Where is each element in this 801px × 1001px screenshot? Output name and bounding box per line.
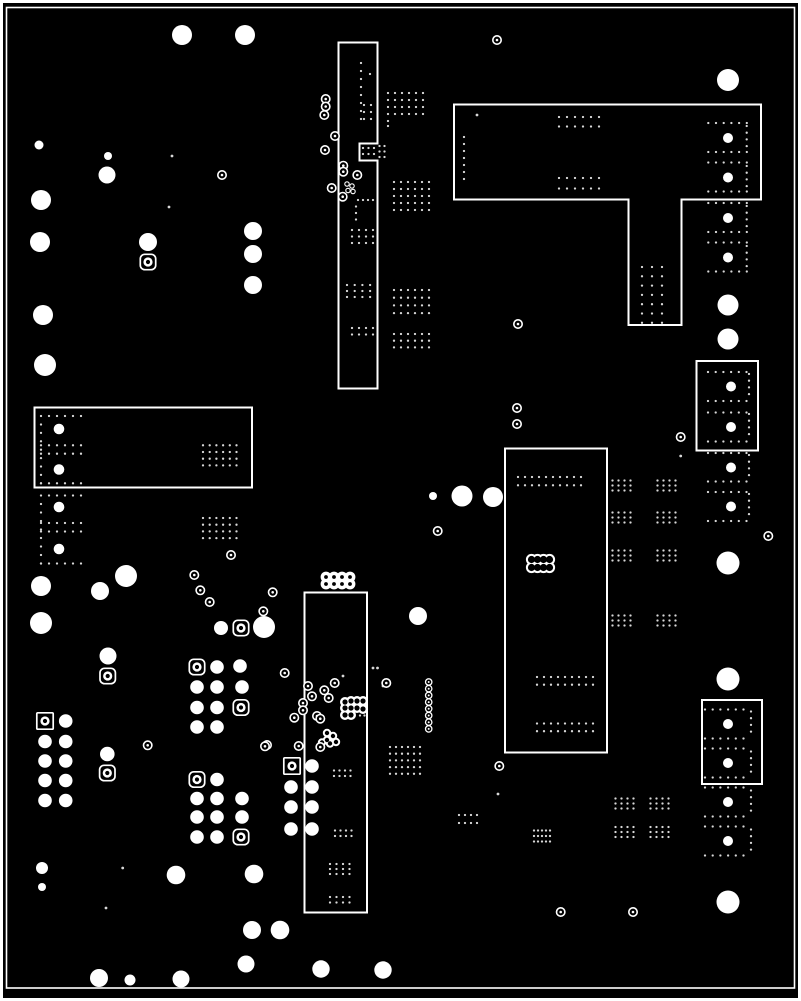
stitch-dot	[422, 113, 424, 115]
filled-via	[244, 276, 262, 294]
stitch-dot	[56, 522, 58, 524]
pad-block-circle	[38, 735, 52, 749]
stitch-dot	[362, 153, 364, 155]
stitch-dot	[215, 464, 217, 466]
stitch-dot	[674, 511, 676, 513]
stitch-dot	[620, 826, 622, 828]
stitch-dot	[617, 484, 619, 486]
stitch-dot	[345, 829, 347, 831]
stitch-dot	[363, 714, 365, 716]
stitch-dot	[557, 684, 559, 686]
stitch-dot	[712, 815, 714, 817]
stitch-dot	[704, 815, 706, 817]
stitch-dot	[476, 814, 478, 816]
pcb-copper-layer-view	[0, 0, 801, 1001]
stitch-dot	[715, 202, 717, 204]
ring-via-center	[262, 610, 265, 613]
stitch-dot	[661, 322, 663, 324]
stitch-dot	[394, 99, 396, 101]
stitch-dot	[401, 773, 403, 775]
stitch-dot	[674, 489, 676, 491]
stitch-dot	[358, 242, 360, 244]
ring-chain-center	[428, 708, 430, 710]
ring-cluster-2x4-hole	[348, 575, 352, 579]
stitch-dot	[649, 807, 651, 809]
stitch-dot	[369, 290, 371, 292]
stitch-dot	[719, 776, 721, 778]
stitch-dot	[750, 803, 752, 805]
stitch-dot	[372, 333, 374, 335]
stitch-dot	[40, 457, 42, 459]
stitch-dot	[393, 297, 395, 299]
stitch-dot	[393, 333, 395, 335]
ring-via-center	[230, 554, 233, 557]
filled-via	[244, 222, 262, 240]
stitch-dot	[590, 177, 592, 179]
ring-via-center	[199, 589, 202, 592]
pad-block-circle	[59, 714, 73, 728]
stitch-dot	[661, 266, 663, 268]
stitch-dot	[674, 479, 676, 481]
ring-chain-center	[428, 728, 430, 730]
stitch-dot	[209, 517, 211, 519]
stitch-dot	[651, 294, 653, 296]
stitch-dot	[620, 802, 622, 804]
stitch-dot	[209, 458, 211, 460]
stitch-dot	[626, 831, 628, 833]
stitch-dot	[533, 835, 535, 837]
ring-via-center	[356, 174, 359, 177]
stitch-dot	[629, 521, 631, 523]
stitch-dot	[358, 235, 360, 237]
stitch-dot	[357, 199, 359, 201]
stitch-dot	[712, 747, 714, 749]
stitch-dot	[746, 190, 748, 192]
stitch-dot	[419, 773, 421, 775]
stitch-dot	[387, 120, 389, 122]
stitch-dot	[215, 530, 217, 532]
stitch-dot	[378, 145, 380, 147]
stitch-dot	[40, 530, 42, 532]
stitch-dot	[730, 411, 732, 413]
stitch-dot	[335, 901, 337, 903]
stitch-dot	[738, 400, 740, 402]
stitch-dot	[395, 753, 397, 755]
stitch-dot	[80, 522, 82, 524]
stitch-dot	[750, 789, 752, 791]
stitch-dot	[80, 453, 82, 455]
stitch-dot	[464, 822, 466, 824]
ring-cluster-2x4-hole	[332, 575, 336, 579]
stitch-dot	[590, 125, 592, 127]
stitch-dot	[629, 484, 631, 486]
filled-via	[172, 25, 192, 45]
stitch-dot	[414, 297, 416, 299]
stitch-dot	[748, 433, 750, 435]
stitch-dot	[629, 479, 631, 481]
filled-via	[723, 758, 733, 768]
stitch-dot	[746, 212, 748, 214]
stitch-dot	[611, 516, 613, 518]
stitch-dot	[531, 476, 533, 478]
stitch-dot	[674, 554, 676, 556]
stitch-dot	[722, 440, 724, 442]
stitch-dot	[72, 415, 74, 417]
filled-via	[723, 173, 733, 183]
stitch-dot	[564, 730, 566, 732]
stitch-dot	[407, 304, 409, 306]
stitch-dot	[574, 177, 576, 179]
stitch-dot	[235, 444, 237, 446]
stitch-dot	[723, 202, 725, 204]
stitch-dot	[611, 559, 613, 561]
stitch-dot	[667, 797, 669, 799]
stitch-dot	[742, 737, 744, 739]
stitch-dot	[626, 807, 628, 809]
ring-via-center	[324, 149, 327, 152]
stitch-dot	[56, 453, 58, 455]
scallop-edge-bottom-center-hole	[360, 698, 365, 703]
stitch-dot	[750, 796, 752, 798]
stitch-dot	[407, 773, 409, 775]
stitch-dot	[614, 826, 616, 828]
pad-block-circle	[305, 800, 319, 814]
stitch-dot	[750, 750, 752, 752]
stitch-dot	[393, 346, 395, 348]
stitch-dot	[414, 304, 416, 306]
stitch-dot	[428, 304, 430, 306]
filled-via	[54, 502, 65, 513]
stitch-dot	[202, 517, 204, 519]
pad-block-circle	[38, 794, 52, 808]
stitch-dot	[363, 111, 365, 113]
stitch-dot	[428, 340, 430, 342]
stitch-dot	[394, 92, 396, 94]
stitch-dot	[738, 520, 740, 522]
ring-via-center	[496, 39, 499, 42]
scallop-edge-bottom-center-hole	[354, 705, 359, 710]
stitch-dot	[407, 297, 409, 299]
stitch-dot	[40, 528, 42, 530]
stitch-dot	[536, 730, 538, 732]
stitch-dot	[674, 516, 676, 518]
stitch-dot	[348, 873, 350, 875]
stitch-dot	[719, 825, 721, 827]
filled-via	[139, 233, 157, 251]
stitch-dot	[719, 815, 721, 817]
stitch-dot	[632, 797, 634, 799]
stitch-dot	[655, 826, 657, 828]
stitch-dot	[329, 896, 331, 898]
pad-block-circle	[59, 754, 73, 768]
stitch-dot	[649, 826, 651, 828]
stitch-dot	[407, 753, 409, 755]
stitch-dot	[580, 476, 582, 478]
stitch-dot	[393, 340, 395, 342]
stitch-dot	[727, 737, 729, 739]
stitch-dot	[707, 270, 709, 272]
stitch-dot	[333, 769, 335, 771]
ring-via-center	[498, 765, 501, 768]
stitch-dot	[667, 831, 669, 833]
stitch-dot	[222, 444, 224, 446]
stitch-dot	[235, 537, 237, 539]
stitch-dot	[668, 521, 670, 523]
stitch-dot	[538, 484, 540, 486]
stitch-dot	[564, 676, 566, 678]
stitch-dot	[365, 235, 367, 237]
stitch-dot	[541, 829, 543, 831]
stitch-dot	[559, 476, 561, 478]
stitch-dot	[614, 807, 616, 809]
stitch-dot	[617, 516, 619, 518]
stitch-dot	[649, 797, 651, 799]
stitch-dot	[358, 229, 360, 231]
ring-via-center	[517, 323, 520, 326]
stitch-dot	[748, 461, 750, 463]
stitch-dot	[626, 802, 628, 804]
stitch-dot	[662, 489, 664, 491]
stitch-dot	[748, 420, 750, 422]
scallop-edge-bottom-center-hole	[342, 705, 347, 710]
small-ring-via	[350, 184, 354, 188]
stitch-dot	[566, 187, 568, 189]
stitch-dot	[712, 776, 714, 778]
scallop-edge-bottom-center-hole	[354, 698, 359, 703]
stitch-dot	[649, 831, 651, 833]
filled-via	[238, 956, 255, 973]
stitch-dot	[629, 489, 631, 491]
stitch-dot	[674, 559, 676, 561]
filled-via	[173, 971, 190, 988]
stitch-dot	[585, 730, 587, 732]
stitch-dot	[40, 537, 42, 539]
stitch-dot	[715, 400, 717, 402]
pad-block-circle	[210, 810, 224, 824]
stitch-dot	[401, 753, 403, 755]
ring-cluster-2x4-hole	[332, 582, 336, 586]
pcb-layer-viewport	[0, 0, 801, 1001]
stitch-dot	[370, 104, 372, 106]
stitch-dot	[715, 151, 717, 153]
stitch-dot	[421, 195, 423, 197]
stitch-dot	[750, 809, 752, 811]
stitch-dot	[229, 537, 231, 539]
stitch-dot	[662, 549, 664, 551]
stitch-dot	[401, 92, 403, 94]
stitch-dot	[735, 854, 737, 856]
stitch-dot	[750, 842, 752, 844]
stitch-dot	[543, 676, 545, 678]
stitch-dot	[202, 537, 204, 539]
stitch-dot	[598, 116, 600, 118]
stitch-dot	[750, 848, 752, 850]
stitch-dot	[407, 312, 409, 314]
stitch-dot	[372, 242, 374, 244]
stitch-dot	[674, 549, 676, 551]
stitch-dot	[378, 150, 380, 152]
stitch-dot	[656, 549, 658, 551]
filled-via	[243, 921, 261, 939]
stitch-dot	[611, 489, 613, 491]
stitch-dot	[651, 266, 653, 268]
stitch-dot	[369, 296, 371, 298]
ring-via-center	[342, 164, 345, 167]
stitch-dot	[40, 453, 42, 455]
stitch-dot	[735, 747, 737, 749]
stitch-dot	[64, 494, 66, 496]
single-dot	[372, 667, 375, 670]
stitch-dot	[611, 521, 613, 523]
stitch-dot	[632, 836, 634, 838]
stitch-dot	[641, 275, 643, 277]
stitch-dot	[545, 829, 547, 831]
stitch-dot	[651, 312, 653, 314]
stitch-dot	[543, 722, 545, 724]
stitch-dot	[667, 802, 669, 804]
stitch-dot	[748, 474, 750, 476]
stitch-dot	[421, 333, 423, 335]
stitch-dot	[401, 106, 403, 108]
stitch-dot	[401, 113, 403, 115]
stitch-dot	[463, 171, 465, 173]
stitch-dot	[590, 187, 592, 189]
stitch-dot	[662, 619, 664, 621]
stitch-dot	[365, 242, 367, 244]
stitch-dot	[202, 464, 204, 466]
stitch-dot	[545, 484, 547, 486]
filled-via	[99, 167, 116, 184]
stitch-dot	[401, 766, 403, 768]
stitch-dot	[598, 125, 600, 127]
stitch-dot	[395, 759, 397, 761]
stitch-dot	[668, 479, 670, 481]
stitch-dot	[742, 815, 744, 817]
stitch-dot	[651, 284, 653, 286]
stitch-dot	[611, 624, 613, 626]
stitch-dot	[464, 814, 466, 816]
single-dot	[679, 455, 682, 458]
stitch-dot	[222, 458, 224, 460]
stitch-dot	[215, 537, 217, 539]
stitch-dot	[550, 722, 552, 724]
ring-via-center	[208, 601, 211, 604]
pad-block-circle	[59, 794, 73, 808]
ring-via-center	[302, 702, 305, 705]
stitch-dot	[746, 252, 748, 254]
stitch-dot	[722, 520, 724, 522]
stitch-dot	[668, 614, 670, 616]
stitch-dot	[629, 624, 631, 626]
stitch-dot	[533, 840, 535, 842]
stitch-dot	[421, 202, 423, 204]
stitch-dot	[383, 156, 385, 158]
stitch-dot	[750, 724, 752, 726]
stitch-dot	[229, 451, 231, 453]
stitch-dot	[651, 275, 653, 277]
pad-block-circle	[210, 830, 224, 844]
stitch-dot	[748, 393, 750, 395]
stitch-dot	[592, 722, 594, 724]
filled-via	[483, 487, 503, 507]
scallop-small-bottom-center-hole	[334, 740, 338, 744]
stitch-dot	[730, 151, 732, 153]
stitch-dot	[707, 452, 709, 454]
stitch-dot	[421, 181, 423, 183]
stitch-dot	[611, 549, 613, 551]
stitch-dot	[668, 624, 670, 626]
stitch-dot	[222, 537, 224, 539]
stitch-dot	[668, 484, 670, 486]
stitch-dot	[378, 156, 380, 158]
stitch-dot	[80, 530, 82, 532]
stitch-dot	[537, 835, 539, 837]
stitch-dot	[72, 453, 74, 455]
stitch-dot	[745, 491, 747, 493]
stitch-dot	[545, 840, 547, 842]
stitch-dot	[329, 863, 331, 865]
stitch-dot	[704, 825, 706, 827]
stitch-dot	[662, 511, 664, 513]
stitch-dot	[748, 506, 750, 508]
stitch-dot	[229, 464, 231, 466]
stitch-dot	[738, 122, 740, 124]
stitch-dot	[401, 99, 403, 101]
ring-via-center	[302, 709, 305, 712]
stitch-dot	[413, 753, 415, 755]
stitch-dot	[351, 235, 353, 237]
stitch-dot	[414, 289, 416, 291]
stitch-dot	[346, 296, 348, 298]
stitch-dot	[335, 873, 337, 875]
stitch-dot	[746, 270, 748, 272]
stitch-dot	[415, 92, 417, 94]
single-dot	[497, 793, 500, 796]
ring-via-center	[516, 423, 519, 426]
stitch-dot	[674, 521, 676, 523]
stitch-dot	[668, 559, 670, 561]
stitch-dot	[56, 562, 58, 564]
stitch-dot	[400, 304, 402, 306]
stitch-dot	[715, 241, 717, 243]
stitch-dot	[334, 835, 336, 837]
stitch-dot	[209, 451, 211, 453]
stitch-dot	[414, 181, 416, 183]
stitch-dot	[400, 346, 402, 348]
stitch-dot	[222, 530, 224, 532]
stitch-dot	[202, 458, 204, 460]
stitch-dot	[641, 312, 643, 314]
pad-block-circle	[190, 792, 204, 806]
stitch-dot	[400, 181, 402, 183]
stitch-dot	[651, 303, 653, 305]
filled-via	[31, 190, 51, 210]
stitch-dot	[524, 476, 526, 478]
filled-via	[34, 354, 56, 376]
stitch-dot	[704, 776, 706, 778]
ring-via-center	[385, 682, 388, 685]
stitch-dot	[566, 476, 568, 478]
stitch-dot	[592, 730, 594, 732]
filled-via	[717, 891, 740, 914]
stitch-dot	[738, 480, 740, 482]
stitch-dot	[656, 516, 658, 518]
stitch-dot	[543, 730, 545, 732]
stitch-dot	[80, 444, 82, 446]
pad-block-circle	[210, 792, 224, 806]
stitch-dot	[590, 116, 592, 118]
stitch-dot	[662, 624, 664, 626]
